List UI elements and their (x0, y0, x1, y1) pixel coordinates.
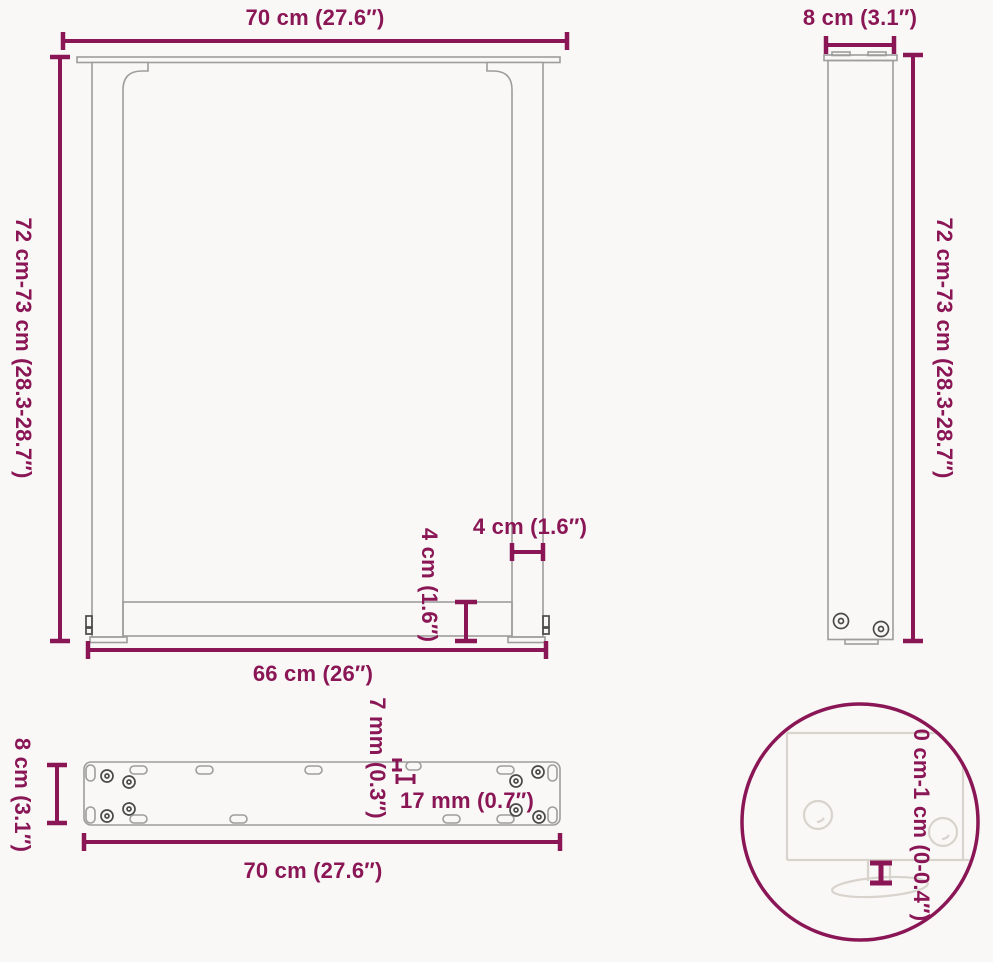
plate-screw-center (127, 807, 131, 811)
side-foot-pad (845, 640, 878, 645)
detail-circle (742, 704, 985, 940)
detail-screw-mark (942, 835, 949, 839)
plate-slot (196, 766, 213, 774)
front-bottom-width-label: 66 cm (26″) (253, 661, 373, 687)
side-screw-right-center (879, 627, 884, 632)
plate-screw-center (105, 814, 109, 818)
plate-screw (533, 811, 545, 823)
front-leg-thickness-label: 4 cm (1.6″) (473, 514, 587, 540)
detail-circle-outline (742, 704, 978, 940)
plate-slot (443, 815, 460, 823)
front-left-foot-pad (90, 637, 127, 643)
plate-slot (130, 815, 147, 823)
front-crossbar (123, 602, 512, 636)
front-top-plate (77, 57, 560, 63)
front-left-adjuster-nut (86, 628, 92, 634)
side-width-label: 8 cm (3.1″) (803, 5, 917, 31)
plate-screw (101, 810, 113, 822)
plate-slot (86, 807, 95, 823)
plate-slot-measured (406, 762, 421, 770)
side-screw-left-center (839, 619, 844, 624)
front-view-drawing (77, 57, 560, 643)
detail-dimension (870, 863, 892, 883)
front-view-dimension-lines (50, 32, 567, 659)
side-leg-body (828, 61, 893, 640)
plate-screw (123, 803, 135, 815)
plate-screw-center (127, 780, 131, 784)
plate-slot (497, 815, 514, 823)
detail-screw-mark (817, 818, 824, 822)
top-view-depth-label: 8 cm (3.1″) (9, 738, 35, 852)
front-left-adjuster (86, 616, 92, 627)
side-view-dimension-lines (826, 36, 923, 641)
front-height-label: 72 cm-73 cm (28.3-28.7″) (10, 217, 36, 478)
plate-screw (101, 770, 113, 782)
diagram-line-art (0, 0, 993, 962)
plate-screw (123, 776, 135, 788)
front-right-adjuster (543, 616, 549, 627)
detail-content (787, 733, 985, 900)
top-view-slot-length-label: 17 mm (0.7″) (400, 788, 534, 814)
plate-screw (532, 766, 544, 778)
plate-slot (548, 765, 557, 781)
plate-slot (497, 766, 514, 774)
plate-screw (510, 775, 522, 787)
plate-screw-center (537, 815, 541, 819)
front-right-foot-pad (508, 637, 545, 643)
plate-slot (548, 807, 557, 823)
plate-slot (130, 766, 147, 774)
top-view-width-label: 70 cm (27.6″) (243, 858, 382, 884)
plate-screw-center (105, 774, 109, 778)
detail-screw (804, 801, 832, 829)
front-left-leg (92, 63, 148, 638)
front-top-width-label: 70 cm (27.6″) (245, 5, 384, 31)
dimension-diagram: 70 cm (27.6″) 72 cm-73 cm (28.3-28.7″) 4… (0, 0, 993, 962)
top-view-hole-diameter-label: 7 mm (0.3″) (364, 697, 390, 819)
detail-adjustable-height-label: 0 cm-1 cm (0-0.4″) (908, 729, 934, 922)
front-crossbar-thickness-label: 4 cm (1.6″) (416, 528, 442, 642)
side-plate-tab-left (832, 52, 850, 56)
plate-slot (86, 765, 95, 781)
side-height-label: 72 cm-73 cm (28.3-28.7″) (931, 217, 957, 478)
side-screw-left (834, 614, 849, 629)
side-plate-tab-right (868, 52, 886, 56)
front-right-adjuster-nut (543, 628, 549, 634)
plate-screw-center (536, 770, 540, 774)
plate-slot (305, 766, 322, 774)
side-screw-right (874, 622, 889, 637)
side-view-drawing (824, 52, 897, 644)
plate-slot (230, 815, 247, 823)
plate-screw-center (514, 779, 518, 783)
